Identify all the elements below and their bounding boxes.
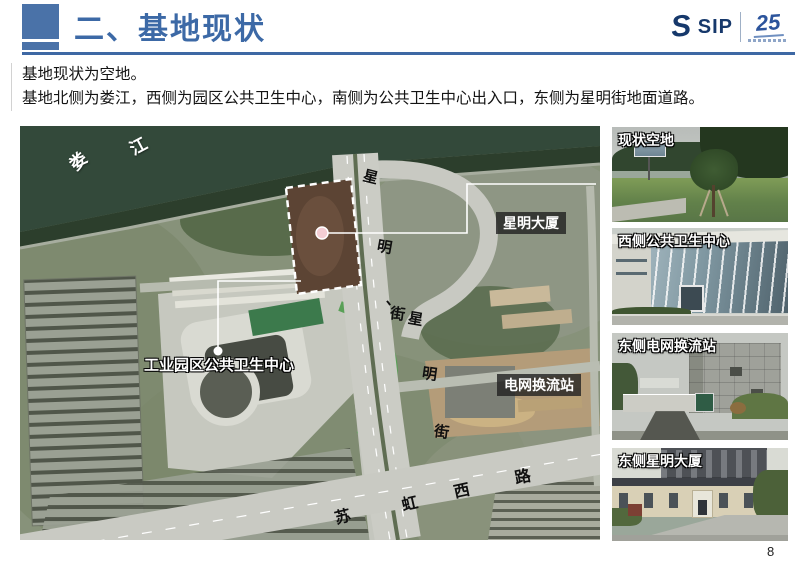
textbox-edge: [11, 63, 12, 111]
sip-logo-text: SIP: [698, 17, 733, 37]
header-rule: [22, 52, 795, 55]
anniversary-25-logo: 25: [748, 12, 788, 42]
map-label-road-char: 西: [453, 483, 472, 502]
logo-divider: [740, 12, 741, 42]
photo-label: 东侧星明大厦: [618, 451, 702, 471]
header-accent-bar: [22, 42, 59, 50]
photo-health-center-west: 西侧公共卫生中心: [612, 228, 788, 325]
sip-swoosh-icon: S: [669, 11, 692, 43]
photo-label: 西侧公共卫生中心: [618, 231, 730, 251]
map-callout-health-center: 工业园区公共卫生中心: [144, 354, 294, 375]
map-label-road-char: 街: [389, 306, 406, 323]
photo-xingming-tower-east: 东侧星明大厦: [612, 448, 788, 541]
photo-label: 现状空地: [618, 130, 674, 150]
map-label-road-char: 路: [514, 469, 533, 488]
map-callout-converter: 电网换流站: [497, 374, 581, 396]
page-number: 8: [767, 544, 774, 559]
page-title: 二、基地现状: [74, 4, 266, 48]
station-sign: [695, 393, 715, 412]
photo-vacant-lot: 现状空地: [612, 127, 788, 222]
map-label-road-char: 街: [433, 424, 450, 441]
map-callout-tower: 星明大厦: [496, 212, 566, 234]
intro-text: 基地现状为空地。 基地北侧为娄江，西侧为园区公共卫生中心，南侧为公共卫生中心出入…: [22, 63, 792, 111]
slide: 二、基地现状 S SIP 25 基地现状为空地。 基地北侧为娄江，西侧为园区公共…: [0, 0, 800, 565]
sip-logo: S SIP 25: [671, 8, 788, 46]
photo-label: 东侧电网换流站: [618, 336, 716, 356]
photo-converter-station-east: 东侧电网换流站: [612, 333, 788, 440]
header-accent-square: [22, 4, 59, 39]
site-map-image: [20, 126, 600, 540]
anniversary-fineprint: [748, 39, 788, 42]
map-label-road-char: 星: [407, 311, 424, 328]
map-label-road-char: 明: [421, 366, 438, 383]
intro-line-1: 基地现状为空地。: [22, 63, 792, 87]
site-marker-dot: [316, 227, 328, 239]
intro-line-2: 基地北侧为娄江，西侧为园区公共卫生中心，南侧为公共卫生中心出入口，东侧为星明街地…: [22, 87, 792, 111]
map-label-road-char: 明: [376, 239, 393, 256]
site-map: 娄 江 星 明 、 街 星 明 街 苏 虹 西 路 星明大厦 电网换流站 工业园…: [20, 126, 600, 540]
